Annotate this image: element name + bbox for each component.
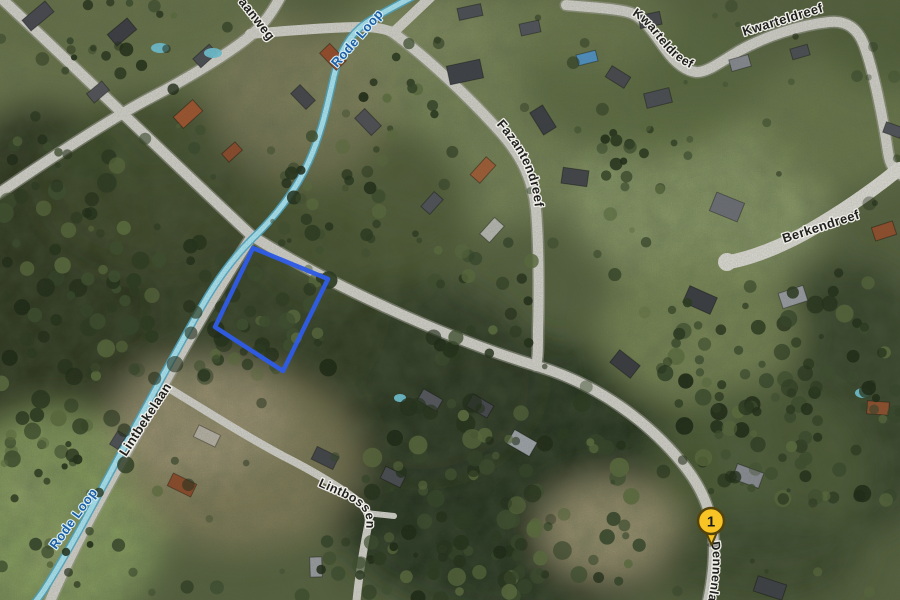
satellite-imagery — [0, 0, 900, 600]
marker-number: 1 — [707, 514, 715, 531]
map-canvas[interactable]: aanweg Rode Loop Kwarteldreef Kwarteldre… — [0, 0, 900, 600]
